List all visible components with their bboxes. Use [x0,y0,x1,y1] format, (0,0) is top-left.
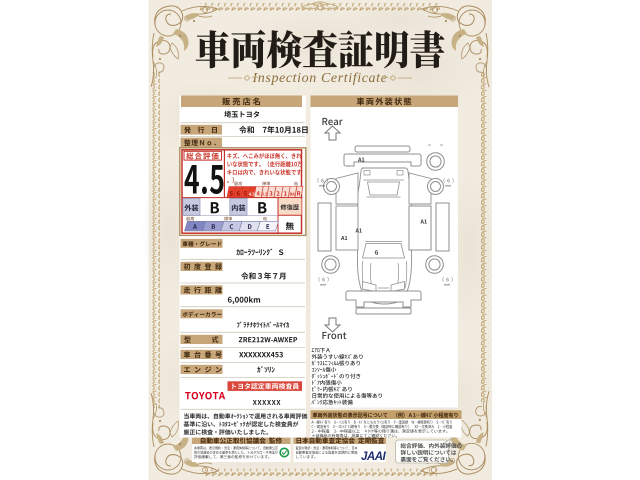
svg-text:Inspection Certificate: Inspection Certificate [252,71,388,86]
svg-text:JAAI: JAAI [361,451,387,463]
